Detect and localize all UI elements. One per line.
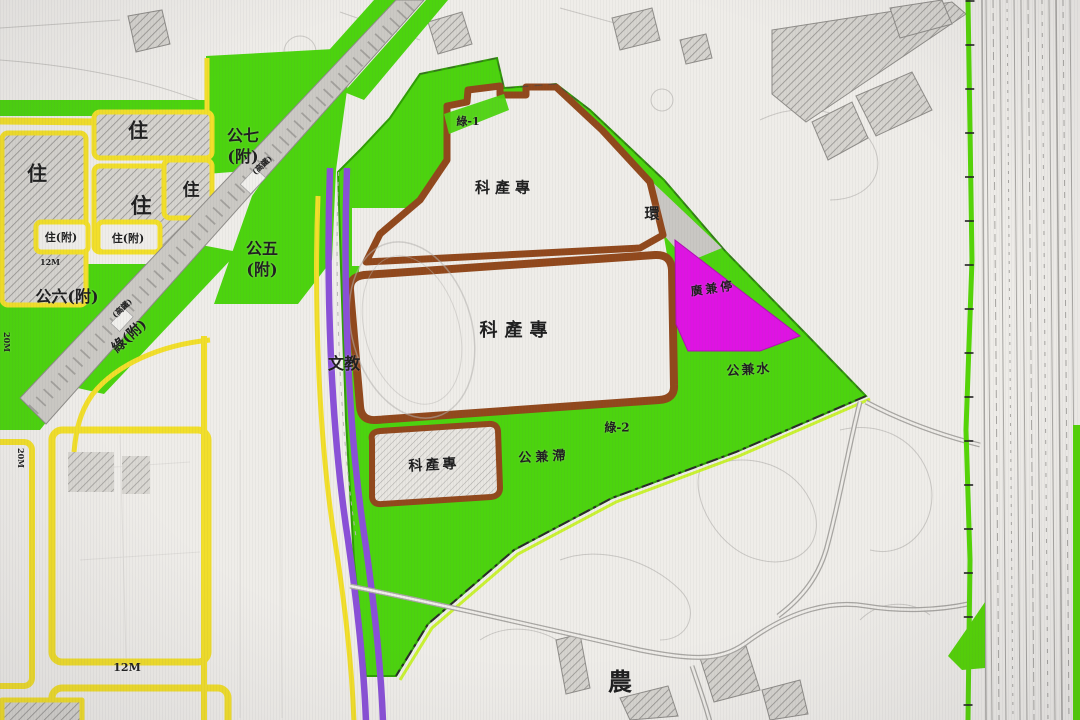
label-residential-2: 住 xyxy=(27,162,47,187)
label-road-20m-a: 20M xyxy=(16,448,26,468)
map-labels: 住住住住住(附)住(附)公七 (附)公五 (附)公六(附)綠(附)(高鐵)(高鐵… xyxy=(0,0,1080,720)
label-hsr-2: (高鐵) xyxy=(110,296,134,319)
label-green-1: 綠-1 xyxy=(456,115,479,129)
zoning-map: 住住住住住(附)住(附)公七 (附)公五 (附)公六(附)綠(附)(高鐵)(高鐵… xyxy=(0,0,1080,720)
label-agriculture: 農 xyxy=(608,667,632,697)
label-road-12m-a: 12M xyxy=(113,661,140,675)
label-road-12m-b: 12M xyxy=(40,257,60,267)
label-residential-1: 住 xyxy=(128,119,148,144)
label-residential-3: 住 xyxy=(131,193,152,219)
label-green-2: 綠-2 xyxy=(604,421,629,436)
label-culture-education: 文教 xyxy=(328,354,360,374)
label-plaza-parking: 廣兼停 xyxy=(690,278,737,299)
label-park-7-annex: 公七 (附) xyxy=(227,126,259,168)
label-residential-annex-1: 住(附) xyxy=(45,231,77,245)
label-sci-industry-3: 科產專 xyxy=(408,456,460,476)
label-road-20m-b: 20M xyxy=(2,332,12,352)
label-sci-industry-1: 科產專 xyxy=(475,179,535,198)
label-park-detention: 公兼滯 xyxy=(518,449,570,468)
label-residential-4: 住 xyxy=(183,180,200,201)
label-park-waterworks: 公兼水 xyxy=(726,361,772,380)
label-park-6-annex: 公六(附) xyxy=(35,287,98,307)
label-greenbelt-annex: 綠(附) xyxy=(109,317,151,358)
label-sci-industry-2: 科產專 xyxy=(480,320,555,343)
label-park-5-annex: 公五 (附) xyxy=(246,239,278,281)
label-ring-road: 環 xyxy=(644,205,659,224)
label-residential-annex-2: 住(附) xyxy=(112,232,144,246)
